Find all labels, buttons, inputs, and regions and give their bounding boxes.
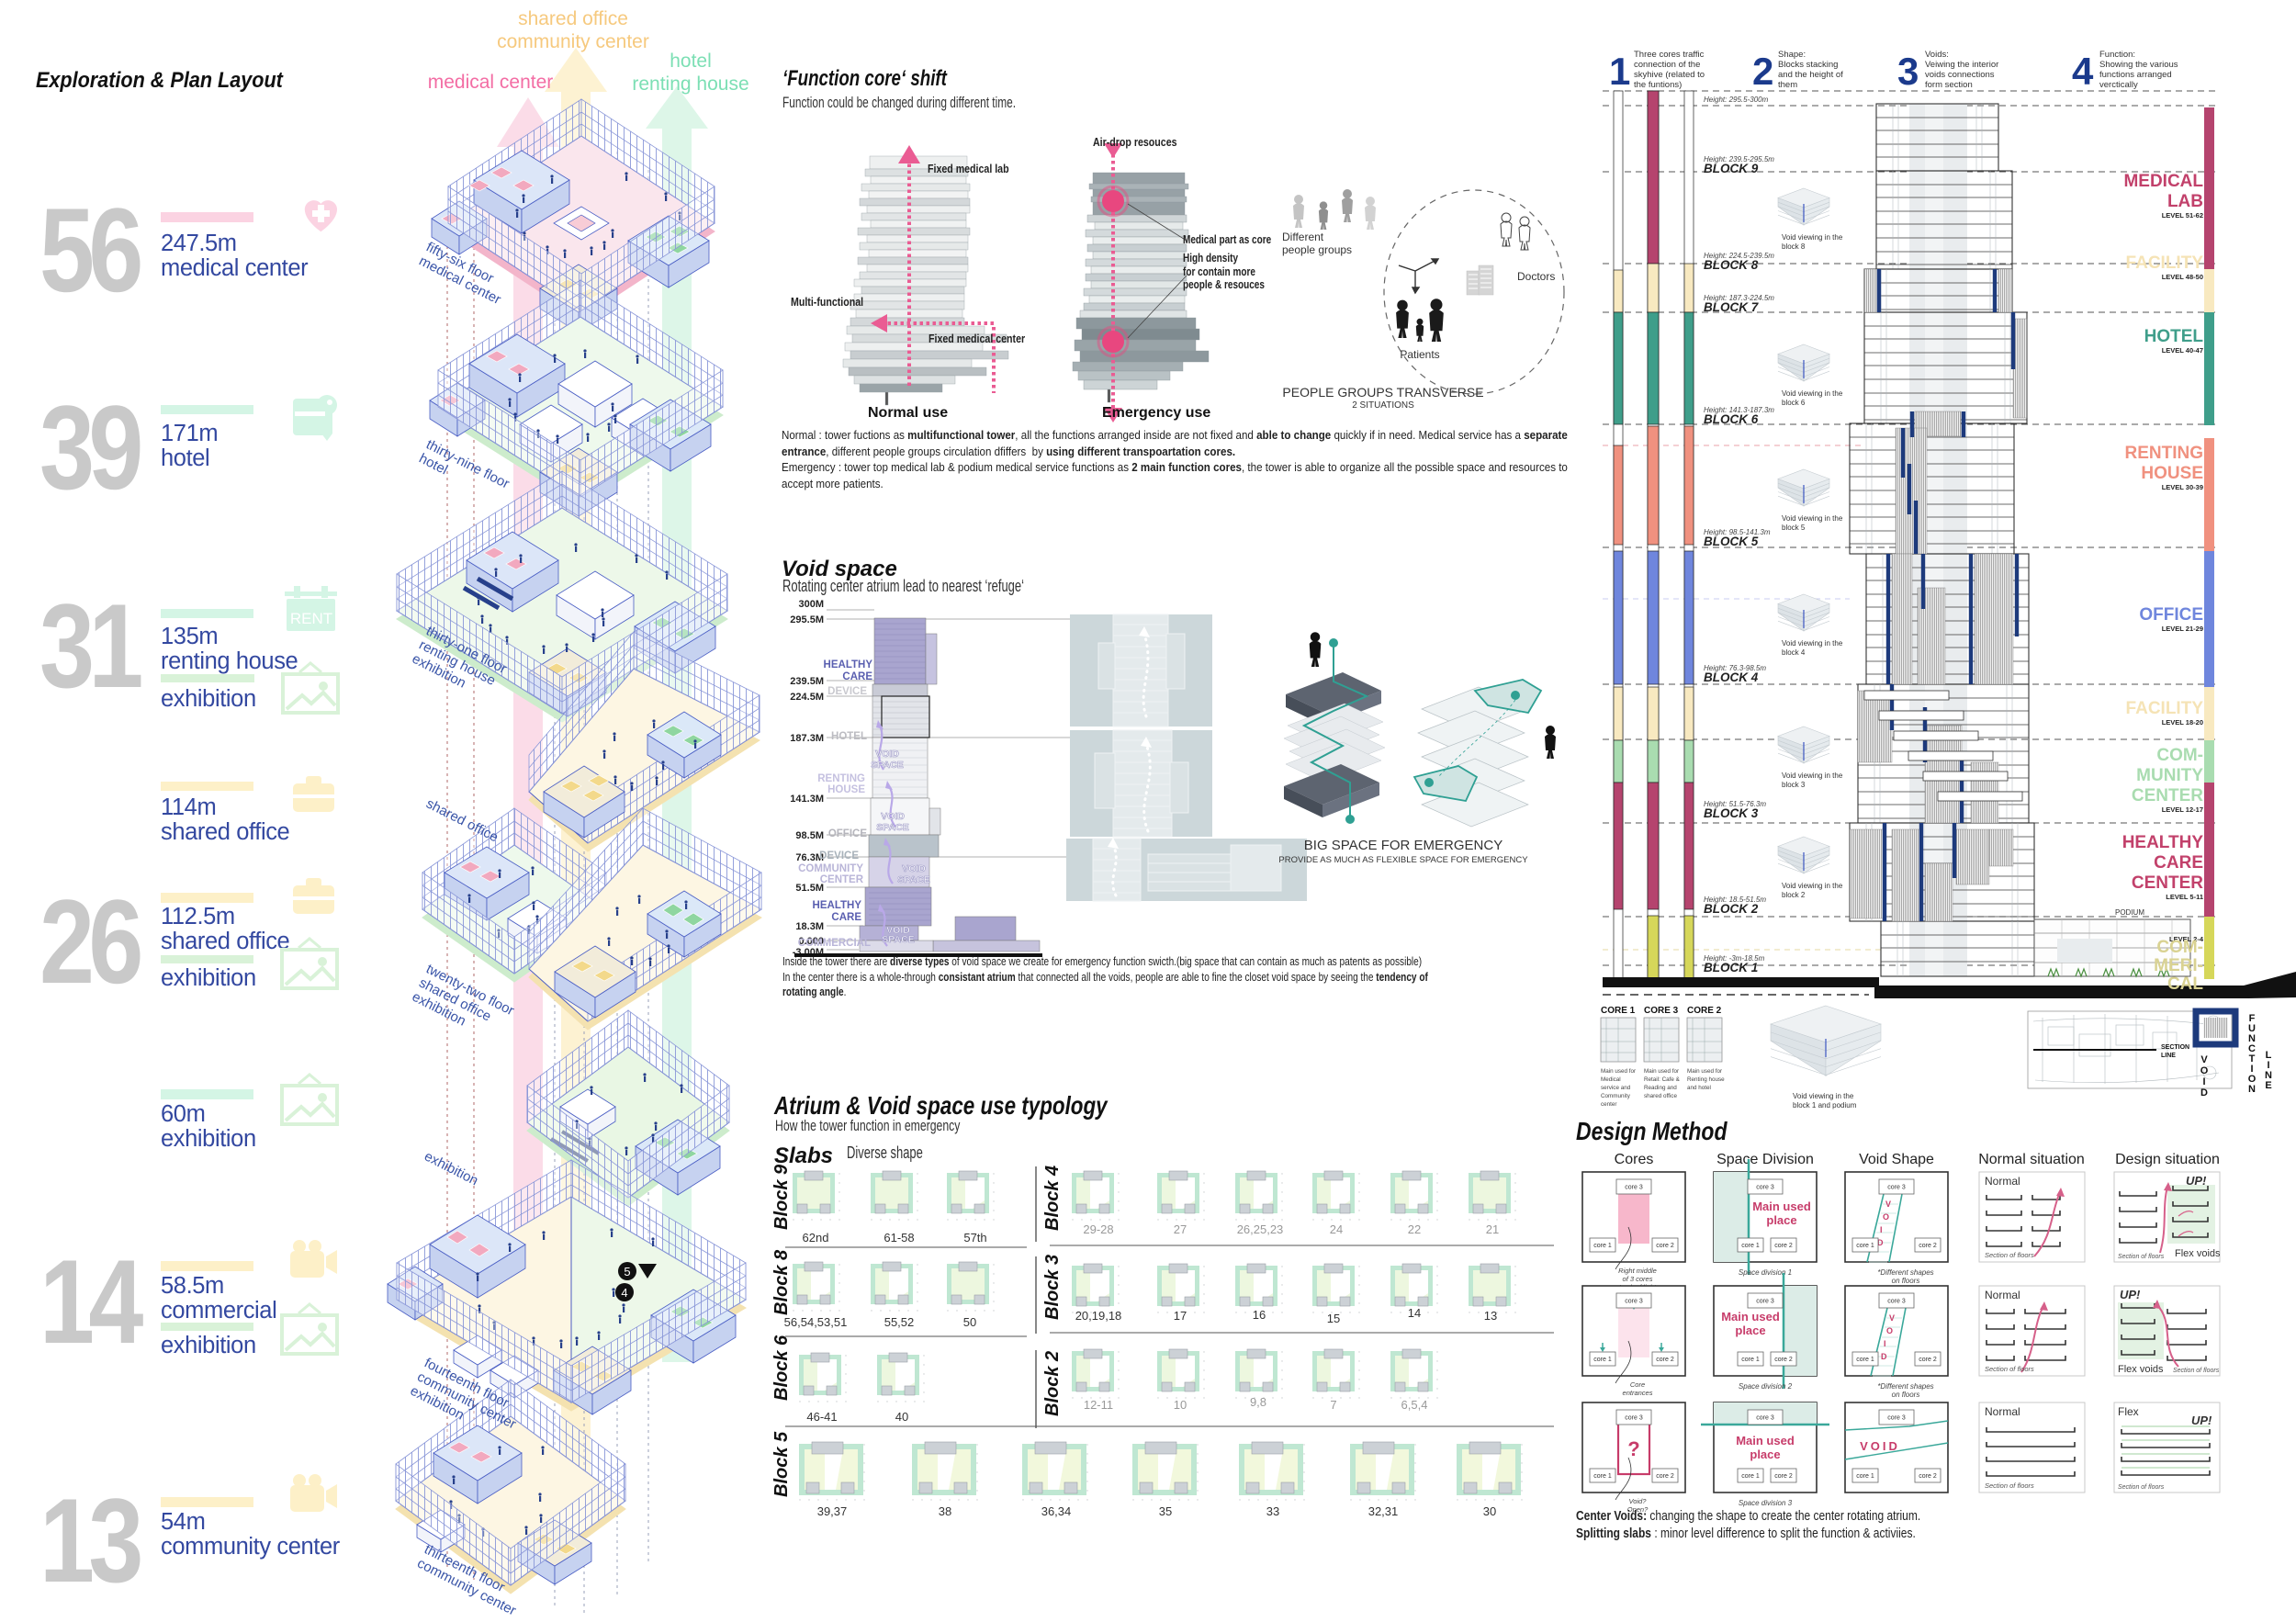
svg-text:block 5: block 5 [1782, 524, 1806, 532]
svg-text:Blocks stacking: Blocks stacking [1778, 60, 1838, 70]
svg-text:PROVIDE AS MUCH AS FLEXIBLE SP: PROVIDE AS MUCH AS FLEXIBLE SPACE FOR EM… [1278, 855, 1528, 865]
svg-text:Block 5: Block 5 [771, 1431, 792, 1497]
svg-text:Shape:: Shape: [1778, 50, 1806, 60]
svg-text:COMMUNITY: COMMUNITY [798, 863, 863, 874]
svg-text:block 3: block 3 [1782, 781, 1806, 789]
svg-text:6,5,4: 6,5,4 [1401, 1398, 1428, 1412]
svg-text:of 3 cores: of 3 cores [1623, 1275, 1653, 1283]
svg-text:BLOCK 4: BLOCK 4 [1704, 670, 1759, 684]
svg-text:1: 1 [1609, 50, 1630, 93]
svg-text:38: 38 [939, 1504, 951, 1518]
svg-text:place: place [1735, 1324, 1765, 1337]
svg-text:functions arranged: functions arranged [2099, 70, 2172, 80]
svg-text:Three cores traffic: Three cores traffic [1634, 50, 1705, 60]
svg-text:N: N [2248, 1084, 2256, 1095]
svg-text:Center Voids: changing the sha: Center Voids: changing the shape to crea… [1576, 1508, 1920, 1524]
svg-text:56,54,53,51: 56,54,53,51 [784, 1315, 848, 1329]
svg-text:Block 2: Block 2 [1042, 1351, 1063, 1416]
svg-text:Reading and: Reading and [1644, 1085, 1677, 1091]
svg-text:I: I [2202, 1076, 2205, 1087]
svg-text:Section of floors: Section of floors [1985, 1481, 2034, 1490]
svg-text:core 2: core 2 [1919, 1243, 1937, 1249]
svg-text:Main used for: Main used for [1601, 1068, 1636, 1075]
svg-text:Different: Different [1282, 231, 1324, 243]
svg-text:*Different shapes: *Different shapes [1877, 1268, 1933, 1277]
svg-text:V: V [2200, 1054, 2208, 1065]
svg-text:2: 2 [1752, 50, 1773, 93]
svg-text:CENTER: CENTER [820, 874, 864, 885]
svg-text:UP!: UP! [2186, 1174, 2207, 1188]
svg-text:57th: 57th [963, 1231, 986, 1245]
svg-text:MERI-: MERI- [2154, 956, 2203, 975]
svg-text:12-11: 12-11 [1084, 1398, 1113, 1412]
svg-text:LEVEL 30-39: LEVEL 30-39 [2162, 483, 2203, 491]
svg-text:295.5M: 295.5M [790, 614, 824, 625]
svg-text:46-41: 46-41 [806, 1410, 837, 1424]
svg-text:5: 5 [624, 1265, 630, 1278]
svg-text:Block 3: Block 3 [1042, 1255, 1063, 1320]
svg-text:block 6: block 6 [1782, 399, 1806, 407]
svg-text:I: I [1884, 1339, 1886, 1348]
svg-text:Void?: Void? [1629, 1497, 1648, 1505]
svg-text:?: ? [1627, 1437, 1639, 1460]
svg-text:22: 22 [1408, 1222, 1421, 1236]
svg-text:MEDICAL: MEDICAL [2123, 172, 2203, 191]
svg-text:OFFICE: OFFICE [828, 828, 867, 839]
svg-text:HOTEL: HOTEL [2144, 327, 2204, 346]
svg-text:COMMERCIAL: COMMERCIAL [798, 938, 871, 949]
svg-text:core 1: core 1 [1741, 1357, 1760, 1363]
svg-text:core 1: core 1 [1741, 1473, 1760, 1480]
svg-text:Block 4: Block 4 [1042, 1166, 1063, 1231]
svg-text:Main used: Main used [1736, 1434, 1795, 1447]
svg-text:Normal situation: Normal situation [1978, 1152, 2085, 1167]
svg-text:core 2: core 2 [1656, 1473, 1674, 1480]
svg-text:FACILITY: FACILITY [2126, 253, 2204, 273]
svg-text:core 2: core 2 [1656, 1357, 1674, 1363]
svg-text:36,34: 36,34 [1041, 1504, 1072, 1518]
svg-text:Void viewing in the: Void viewing in the [1782, 772, 1843, 780]
svg-text:E: E [2265, 1080, 2271, 1091]
svg-text:39,37: 39,37 [817, 1504, 848, 1518]
svg-text:the funtions): the funtions) [1634, 80, 1682, 90]
svg-text:98.5M: 98.5M [795, 830, 824, 841]
svg-text:core 1: core 1 [1856, 1473, 1874, 1480]
svg-text:40: 40 [895, 1410, 908, 1424]
svg-text:core 2: core 2 [1774, 1243, 1793, 1249]
svg-text:Section of floors: Section of floors [1985, 1251, 2034, 1259]
svg-text:187.3M: 187.3M [790, 733, 824, 744]
svg-text:VOID: VOID [875, 749, 899, 760]
svg-text:CORE 3: CORE 3 [1644, 1006, 1679, 1016]
svg-text:Main used: Main used [1721, 1310, 1780, 1324]
svg-text:Right middle: Right middle [1618, 1267, 1657, 1275]
svg-text:shared office: shared office [423, 795, 501, 845]
svg-text:Void viewing in the: Void viewing in the [1782, 639, 1843, 648]
svg-text:Normal: Normal [1985, 1175, 2020, 1188]
svg-text:LEVEL 5-11: LEVEL 5-11 [2166, 893, 2203, 901]
svg-text:Block 8: Block 8 [771, 1249, 792, 1315]
svg-text:Block 9: Block 9 [771, 1164, 792, 1230]
svg-text:26,25,23: 26,25,23 [1237, 1222, 1284, 1236]
svg-text:7: 7 [1330, 1398, 1336, 1412]
svg-text:core 3: core 3 [1625, 1299, 1643, 1305]
svg-text:Core: Core [1630, 1380, 1645, 1389]
svg-text:LEVEL 12-17: LEVEL 12-17 [2162, 805, 2203, 814]
svg-text:Space division 2: Space division 2 [1739, 1382, 1793, 1391]
svg-text:form section: form section [1925, 80, 1973, 90]
svg-text:SECTION: SECTION [2161, 1044, 2189, 1051]
svg-text:COM-: COM- [2156, 938, 2203, 957]
svg-text:BLOCK 9: BLOCK 9 [1704, 162, 1759, 175]
svg-text:27: 27 [1174, 1222, 1187, 1236]
svg-text:exhibition: exhibition [422, 1148, 480, 1188]
svg-text:61-58: 61-58 [884, 1231, 914, 1245]
svg-text:55,52: 55,52 [884, 1315, 915, 1329]
svg-text:LEVEL 21-29: LEVEL 21-29 [2162, 625, 2203, 633]
svg-text:place: place [1750, 1447, 1780, 1461]
svg-text:21: 21 [1486, 1222, 1499, 1236]
svg-text:core 2: core 2 [1774, 1473, 1793, 1480]
svg-text:UP!: UP! [2120, 1288, 2141, 1301]
svg-text:and the height of: and the height of [1778, 70, 1843, 80]
svg-text:15: 15 [1327, 1312, 1340, 1325]
svg-text:9,8: 9,8 [1250, 1395, 1266, 1409]
svg-text:O: O [1886, 1326, 1893, 1335]
svg-text:62nd: 62nd [803, 1231, 829, 1245]
svg-text:50: 50 [963, 1315, 976, 1329]
svg-text:Space Division: Space Division [1716, 1152, 1814, 1167]
svg-text:core 2: core 2 [1919, 1357, 1937, 1363]
svg-text:HEALTHY: HEALTHY [813, 900, 862, 911]
svg-text:Splitting slabs : minor level: Splitting slabs : minor level difference… [1576, 1526, 1916, 1541]
svg-text:core 3: core 3 [1887, 1415, 1906, 1422]
svg-text:block 2: block 2 [1782, 891, 1806, 899]
svg-text:on floors: on floors [1892, 1277, 1920, 1285]
svg-text:CARE: CARE [2154, 853, 2203, 873]
svg-text:voids connections: voids connections [1925, 70, 1995, 80]
svg-text:30: 30 [1483, 1504, 1496, 1518]
svg-text:place: place [1766, 1213, 1796, 1227]
svg-text:BLOCK 6: BLOCK 6 [1704, 412, 1759, 426]
svg-text:BLOCK 3: BLOCK 3 [1704, 806, 1759, 820]
svg-text:BLOCK 5: BLOCK 5 [1704, 535, 1759, 548]
svg-text:300M: 300M [798, 599, 824, 610]
svg-text:CARE: CARE [831, 912, 861, 923]
svg-text:SPACE: SPACE [882, 934, 914, 945]
svg-text:Void viewing in the: Void viewing in the [1782, 233, 1843, 242]
svg-text:16: 16 [1253, 1308, 1266, 1322]
svg-text:Section of floors: Section of floors [2173, 1368, 2220, 1374]
svg-text:HOUSE: HOUSE [2141, 464, 2203, 483]
svg-text:Flex voids: Flex voids [2175, 1248, 2221, 1259]
svg-text:core 1: core 1 [1593, 1357, 1612, 1363]
svg-text:4: 4 [2072, 50, 2094, 93]
svg-text:Normal: Normal [1985, 1405, 2020, 1418]
svg-text:14: 14 [1408, 1306, 1421, 1320]
svg-text:RENTING: RENTING [817, 773, 865, 784]
svg-text:18.3M: 18.3M [795, 921, 824, 932]
svg-text:LEVEL 48-50: LEVEL 48-50 [2162, 273, 2203, 281]
svg-text:HOTEL: HOTEL [831, 731, 867, 742]
svg-text:Cores: Cores [1615, 1152, 1654, 1167]
svg-text:BIG SPACE FOR EMERGENCY: BIG SPACE FOR EMERGENCY [1304, 838, 1503, 853]
svg-text:Main used: Main used [1752, 1200, 1811, 1213]
svg-text:10: 10 [1174, 1398, 1187, 1412]
svg-text:core 3: core 3 [1887, 1299, 1906, 1305]
svg-text:CARE: CARE [842, 671, 872, 682]
svg-text:verctically: verctically [2099, 80, 2138, 90]
svg-text:CORE 1: CORE 1 [1601, 1006, 1636, 1016]
svg-text:COM-: COM- [2156, 746, 2203, 765]
svg-text:Section of floors: Section of floors [1985, 1365, 2034, 1373]
svg-text:core 1: core 1 [1856, 1243, 1874, 1249]
svg-text:on floors: on floors [1892, 1391, 1920, 1399]
svg-text:core 3: core 3 [1887, 1185, 1906, 1191]
svg-text:Void Shape: Void Shape [1859, 1152, 1934, 1167]
svg-text:block 4: block 4 [1782, 648, 1806, 657]
svg-text:V: V [1889, 1313, 1895, 1323]
svg-text:SPACE: SPACE [876, 822, 908, 833]
svg-text:29-28: 29-28 [1083, 1222, 1113, 1236]
svg-text:RENT: RENT [290, 610, 332, 627]
svg-text:I: I [1880, 1225, 1883, 1234]
svg-text:Section of floors: Section of floors [2118, 1484, 2165, 1491]
svg-text:239.5M: 239.5M [790, 676, 824, 687]
svg-text:BLOCK 7: BLOCK 7 [1704, 300, 1760, 314]
svg-text:3: 3 [1897, 50, 1919, 93]
svg-text:RENTING: RENTING [2125, 444, 2204, 463]
svg-text:Patients: Patients [1400, 348, 1439, 361]
svg-text:block 8: block 8 [1782, 242, 1806, 251]
svg-text:skyhive (related to: skyhive (related to [1634, 70, 1705, 80]
svg-text:service and: service and [1601, 1085, 1631, 1091]
svg-text:people groups: people groups [1282, 243, 1352, 256]
svg-text:CORE 2: CORE 2 [1687, 1006, 1722, 1016]
svg-text:LINE: LINE [2161, 1053, 2176, 1059]
svg-text:LEVEL 18-20: LEVEL 18-20 [2162, 718, 2203, 727]
svg-text:BLOCK 1: BLOCK 1 [1704, 961, 1758, 974]
svg-text:32,31: 32,31 [1368, 1504, 1399, 1518]
svg-text:24: 24 [1330, 1222, 1343, 1236]
svg-text:Void viewing in the: Void viewing in the [1782, 389, 1843, 398]
svg-text:HEALTHY: HEALTHY [824, 659, 873, 670]
svg-text:Flex: Flex [2118, 1405, 2139, 1418]
svg-text:core 3: core 3 [1756, 1185, 1774, 1191]
svg-text:Veiwing the interior: Veiwing the interior [1925, 60, 1998, 70]
svg-text:SPACE: SPACE [897, 874, 929, 885]
svg-text:and hotel: and hotel [1687, 1085, 1711, 1091]
svg-text:O: O [2200, 1065, 2209, 1076]
svg-text:20,19,18: 20,19,18 [1075, 1309, 1122, 1323]
svg-text:LEVEL 40-47: LEVEL 40-47 [2162, 346, 2203, 355]
svg-text:core 1: core 1 [1856, 1357, 1874, 1363]
svg-text:Renting house: Renting house [1687, 1076, 1725, 1083]
svg-text:core 2: core 2 [1919, 1473, 1937, 1480]
svg-text:core 3: core 3 [1756, 1299, 1774, 1305]
svg-text:VOID: VOID [881, 811, 905, 822]
svg-text:D: D [1881, 1352, 1887, 1361]
svg-text:HEALTHY: HEALTHY [2122, 833, 2204, 852]
svg-text:Medical: Medical [1601, 1076, 1621, 1083]
svg-text:141.3M: 141.3M [790, 794, 824, 805]
svg-text:core 1: core 1 [1593, 1243, 1612, 1249]
svg-text:them: them [1778, 80, 1797, 90]
svg-text:Design situation: Design situation [2115, 1152, 2220, 1167]
svg-text:MUNITY: MUNITY [2136, 766, 2203, 785]
svg-text:SPACE: SPACE [871, 760, 903, 771]
svg-text:Height: 295.5-300m: Height: 295.5-300m [1704, 96, 1769, 104]
svg-text:core 2: core 2 [1774, 1357, 1793, 1363]
svg-text:224.5M: 224.5M [790, 692, 824, 703]
svg-text:Main used for: Main used for [1644, 1068, 1679, 1075]
svg-text:*Different shapes: *Different shapes [1877, 1382, 1933, 1391]
svg-text:Space division 3: Space division 3 [1739, 1499, 1793, 1507]
svg-text:Voids:: Voids: [1925, 50, 1949, 60]
svg-text:Flex voids: Flex voids [2118, 1364, 2164, 1375]
svg-text:BLOCK 2: BLOCK 2 [1704, 902, 1759, 916]
svg-text:connection of the: connection of the [1634, 60, 1700, 70]
svg-text:Doctors: Doctors [1517, 270, 1555, 283]
svg-text:Showing the various: Showing the various [2099, 60, 2178, 70]
svg-text:O: O [1883, 1212, 1889, 1222]
svg-text:HOUSE: HOUSE [827, 784, 865, 795]
svg-text:4: 4 [621, 1286, 627, 1300]
svg-text:CENTER: CENTER [2132, 873, 2203, 893]
svg-text:Block 6: Block 6 [771, 1335, 792, 1401]
svg-text:LEVEL 51-62: LEVEL 51-62 [2162, 211, 2203, 220]
svg-text:DEVICE: DEVICE [819, 850, 859, 862]
svg-text:LAB: LAB [2167, 192, 2203, 211]
svg-text:CENTER: CENTER [2132, 786, 2203, 805]
svg-text:core 3: core 3 [1625, 1415, 1643, 1422]
svg-text:BLOCK 8: BLOCK 8 [1704, 258, 1759, 272]
svg-text:entrances: entrances [1623, 1389, 1653, 1397]
svg-text:VOID: VOID [1860, 1439, 1900, 1453]
svg-text:DEVICE: DEVICE [827, 686, 867, 697]
svg-text:Retail: Cafe &: Retail: Cafe & [1644, 1076, 1681, 1083]
svg-text:PODIUM: PODIUM [2115, 908, 2144, 917]
svg-text:Function:: Function: [2099, 50, 2135, 60]
svg-text:VOID: VOID [902, 863, 926, 874]
svg-text:35: 35 [1159, 1504, 1172, 1518]
svg-text:FACILITY: FACILITY [2126, 699, 2204, 718]
svg-text:core 3: core 3 [1756, 1415, 1774, 1422]
svg-text:33: 33 [1266, 1504, 1279, 1518]
svg-text:13: 13 [1484, 1309, 1497, 1323]
svg-text:UP!: UP! [2191, 1414, 2212, 1427]
svg-text:Main used for: Main used for [1687, 1068, 1722, 1075]
svg-text:core 1: core 1 [1741, 1243, 1760, 1249]
svg-text:OFFICE: OFFICE [2139, 605, 2203, 625]
svg-text:core 1: core 1 [1593, 1473, 1612, 1480]
svg-text:core 3: core 3 [1625, 1185, 1643, 1191]
svg-text:17: 17 [1174, 1309, 1187, 1323]
svg-text:Void viewing in the: Void viewing in the [1782, 514, 1843, 523]
svg-text:CAL: CAL [2167, 974, 2203, 994]
svg-text:V: V [1885, 1200, 1891, 1209]
svg-text:core 2: core 2 [1656, 1243, 1674, 1249]
svg-text:Section of floors: Section of floors [2118, 1254, 2165, 1260]
svg-text:Design Method: Design Method [1576, 1118, 1728, 1146]
svg-text:Void viewing in the: Void viewing in the [1782, 882, 1843, 890]
svg-text:Normal: Normal [1985, 1289, 2020, 1301]
